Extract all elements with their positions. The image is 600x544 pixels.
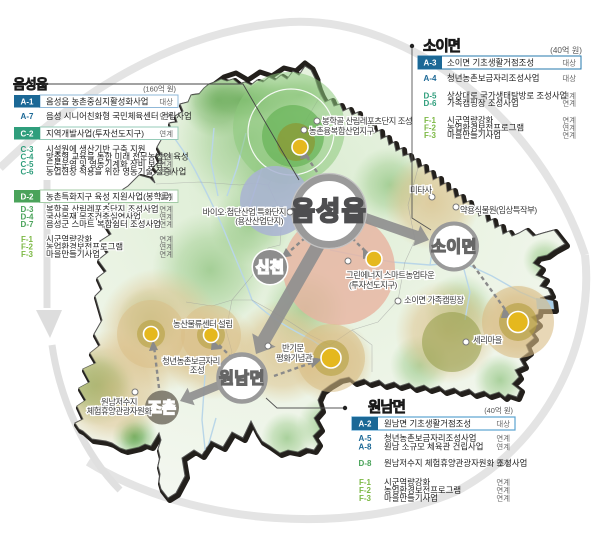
svg-text:연계: 연계 [159, 168, 173, 177]
svg-text:마을만들기사업: 마을만들기사업 [447, 130, 501, 140]
svg-text:원남면: 원남면 [368, 399, 406, 416]
svg-text:농산물류센터 설립: 농산물류센터 설립 [173, 319, 232, 329]
svg-text:음성읍 농촌중심지활성화사업: 음성읍 농촌중심지활성화사업 [46, 97, 149, 107]
svg-text:마을만들기사업: 마을만들기사업 [46, 249, 100, 259]
svg-text:(160억 원): (160억 원) [143, 85, 176, 94]
svg-text:마을만들기사업: 마을만들기사업 [384, 493, 438, 503]
svg-text:소이면: 소이면 [423, 38, 461, 55]
svg-text:농촌융복합산업지구: 농촌융복합산업지구 [309, 126, 375, 136]
svg-text:A-7: A-7 [21, 112, 34, 121]
svg-text:조성: 조성 [190, 365, 204, 375]
svg-text:C-6: C-6 [21, 168, 34, 177]
svg-text:D-6: D-6 [424, 99, 437, 108]
svg-text:연계: 연계 [562, 99, 576, 108]
svg-text:D-7: D-7 [21, 220, 34, 229]
svg-text:봉학골 산림레포츠단지 조성: 봉학골 산림레포츠단지 조성 [322, 116, 412, 126]
svg-text:소이면 가족캠핑장: 소이면 가족캠핑장 [404, 295, 464, 305]
svg-text:대상: 대상 [562, 59, 576, 68]
svg-text:(40억 원): (40억 원) [550, 45, 582, 55]
svg-text:D-2: D-2 [21, 193, 34, 202]
svg-text:A-1: A-1 [21, 98, 34, 107]
svg-text:A-3: A-3 [424, 59, 437, 68]
svg-text:연계: 연계 [159, 112, 173, 121]
svg-text:약용식물원(임상특작부): 약용식물원(임상특작부) [460, 205, 537, 215]
svg-text:조촌: 조촌 [148, 400, 177, 417]
svg-text:A-2: A-2 [359, 420, 372, 429]
svg-text:연계: 연계 [159, 220, 173, 229]
svg-text:(40억 원): (40억 원) [484, 406, 513, 415]
svg-text:세리마을: 세리마을 [473, 335, 503, 345]
svg-text:C-2: C-2 [21, 130, 34, 139]
svg-text:F-3: F-3 [424, 131, 437, 140]
svg-text:소이면 기초생활거점조성: 소이면 기초생활거점조성 [447, 58, 534, 68]
svg-text:원남면: 원남면 [219, 370, 265, 388]
svg-text:평화기념관: 평화기념관 [276, 353, 313, 363]
svg-text:대상: 대상 [159, 98, 173, 107]
svg-text:(용산산업단지): (용산산업단지) [235, 216, 284, 226]
svg-text:F-3: F-3 [359, 494, 372, 503]
svg-text:연계: 연계 [496, 443, 510, 452]
svg-text:연계: 연계 [496, 459, 510, 468]
svg-text:미타사: 미타사 [410, 185, 432, 195]
svg-text:음성읍: 음성읍 [291, 196, 367, 226]
svg-text:A-4: A-4 [424, 74, 437, 83]
svg-text:소이면: 소이면 [431, 238, 477, 256]
svg-text:농촌특화지구 육성 지원사업(봉학골): 농촌특화지구 육성 지원사업(봉학골) [46, 192, 172, 202]
svg-text:지역개발사업(투자선도지구): 지역개발사업(투자선도지구) [46, 129, 144, 139]
svg-text:청년농촌보금자리조성사업: 청년농촌보금자리조성사업 [447, 73, 539, 83]
svg-text:A-8: A-8 [359, 443, 372, 452]
svg-text:대상: 대상 [496, 420, 510, 429]
svg-text:신천: 신천 [256, 258, 285, 276]
svg-text:연계: 연계 [159, 130, 173, 139]
svg-text:반기문: 반기문 [282, 343, 304, 353]
svg-text:연계: 연계 [496, 494, 510, 503]
svg-text:연계: 연계 [562, 131, 576, 140]
svg-text:D-8: D-8 [359, 459, 372, 468]
svg-text:체험휴양관광자원화: 체험휴양관광자원화 [87, 406, 153, 416]
svg-text:연계: 연계 [159, 250, 173, 259]
svg-text:F-3: F-3 [21, 250, 34, 259]
svg-text:(투자선도지구): (투자선도지구) [349, 280, 398, 290]
svg-text:원남 소규모 체육관 건립사업: 원남 소규모 체육관 건립사업 [384, 442, 483, 452]
svg-text:원남면 기초생활거점조성: 원남면 기초생활거점조성 [384, 419, 471, 429]
svg-text:연계: 연계 [159, 193, 173, 202]
svg-text:가족캠핑장 조성사업: 가족캠핑장 조성사업 [447, 98, 519, 108]
svg-text:그린에너지 스마트농업타운: 그린에너지 스마트농업타운 [346, 270, 435, 280]
svg-text:음성군 스마트 복합쉼터 조성사업: 음성군 스마트 복합쉼터 조성사업 [46, 219, 161, 229]
svg-text:대상: 대상 [562, 74, 576, 83]
